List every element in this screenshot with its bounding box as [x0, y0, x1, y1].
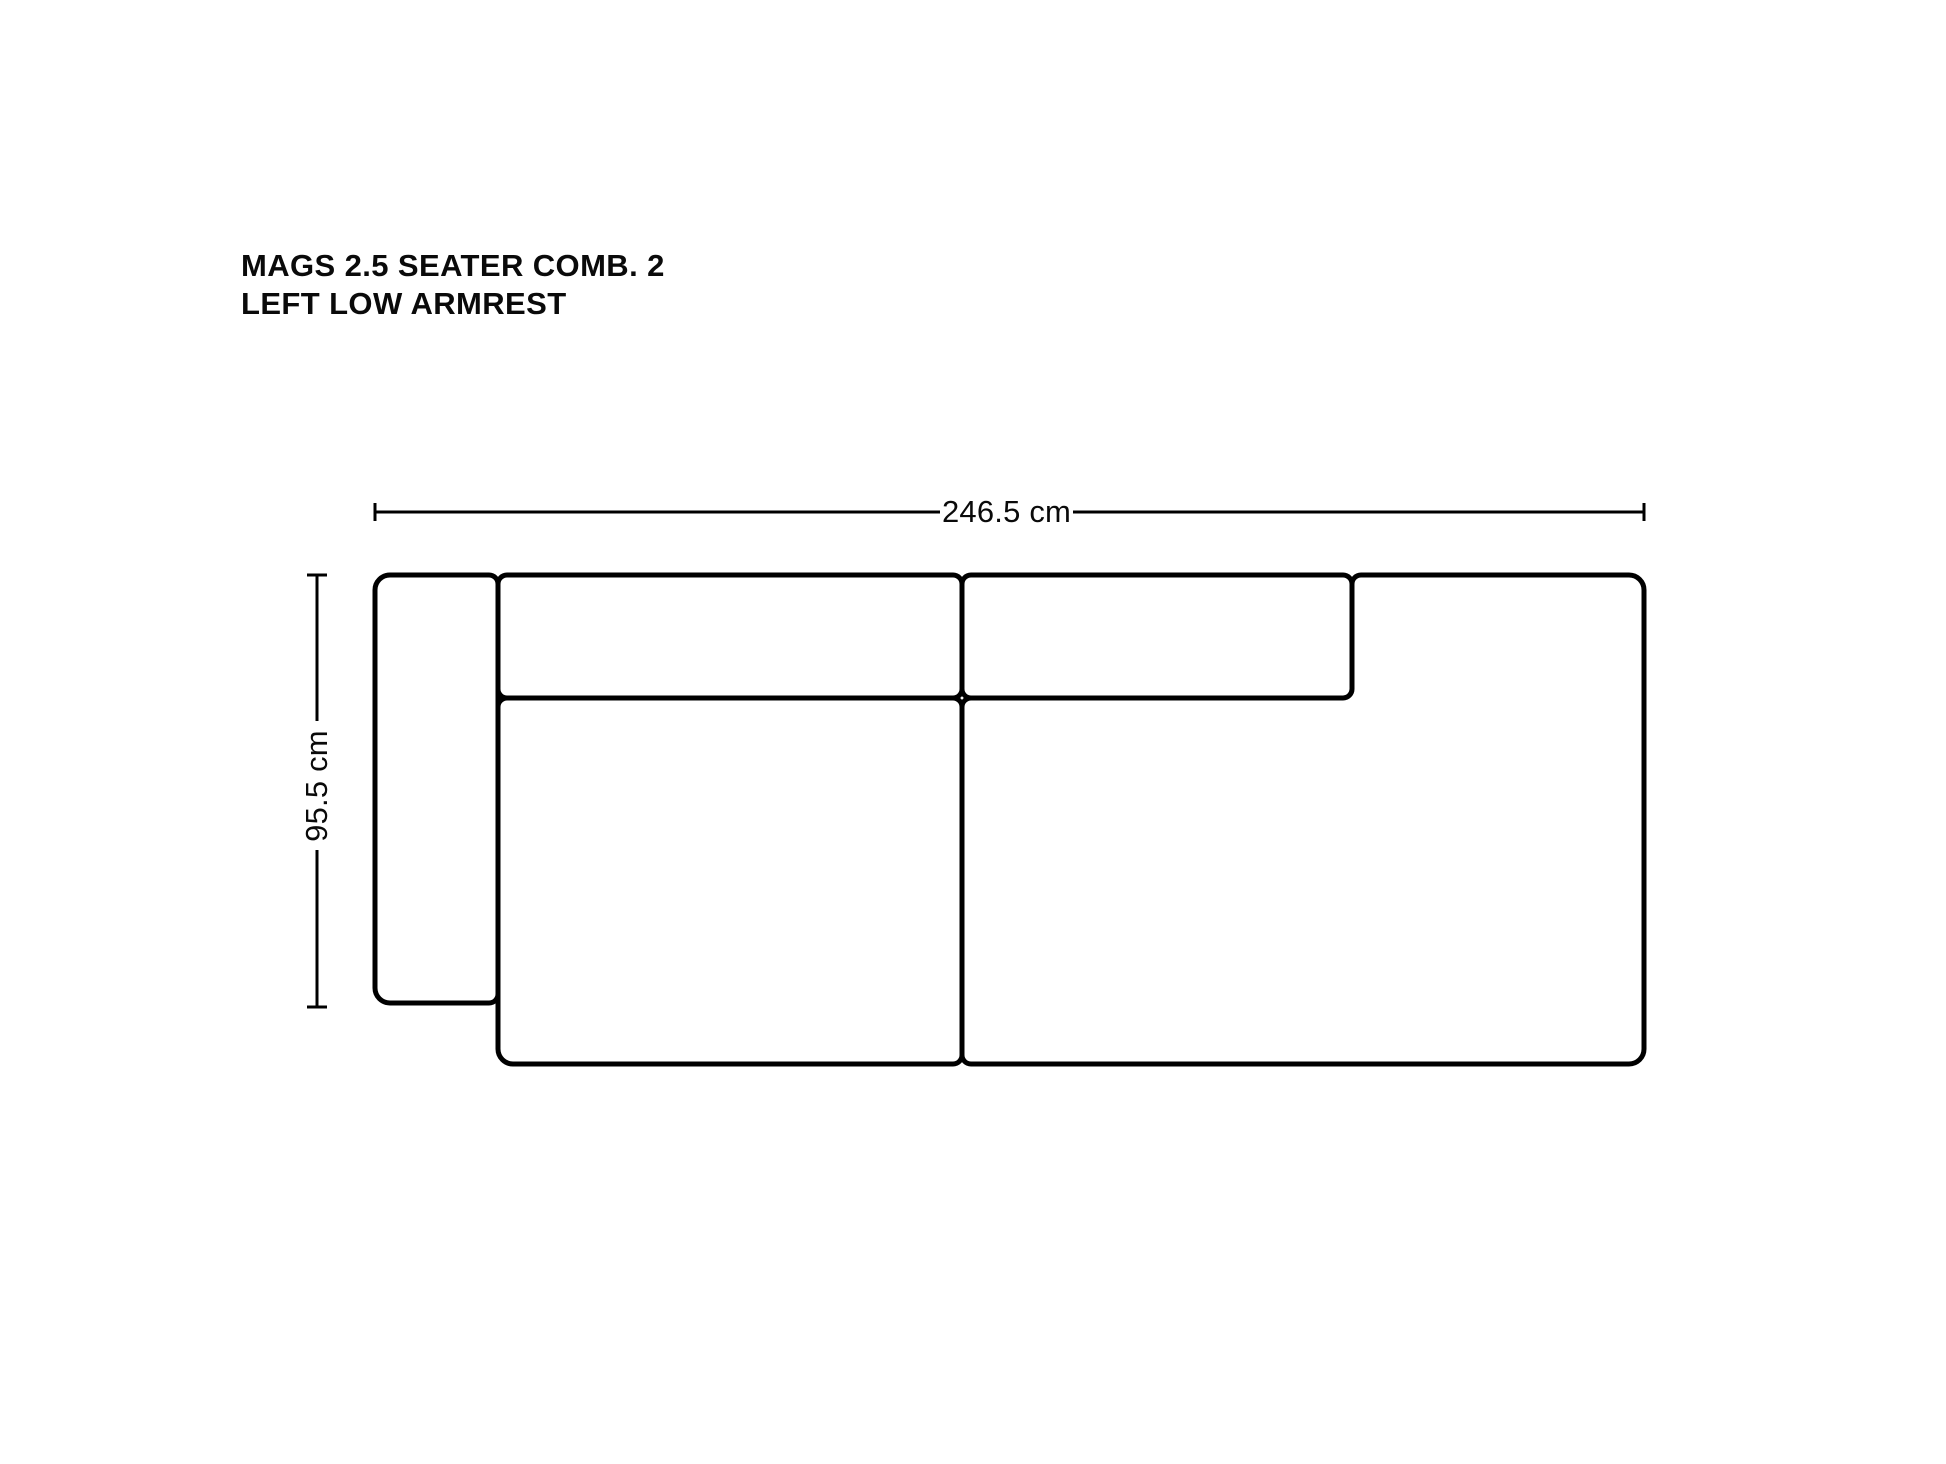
right-backrest-outline — [962, 575, 1352, 698]
left-low-armrest-outline — [375, 575, 498, 1003]
left-backrest-outline — [498, 575, 962, 698]
width-dimension-label: 246.5 cm — [906, 495, 1107, 529]
sofa-outline — [375, 575, 1644, 1064]
depth-dimension-label: 95.5 cm — [300, 686, 334, 886]
product-dimension-diagram-page: MAGS 2.5 SEATER COMB. 2 LEFT LOW ARMREST — [0, 0, 1946, 1464]
left-seat-outline — [498, 698, 962, 1064]
sofa-top-view-diagram — [0, 0, 1946, 1464]
